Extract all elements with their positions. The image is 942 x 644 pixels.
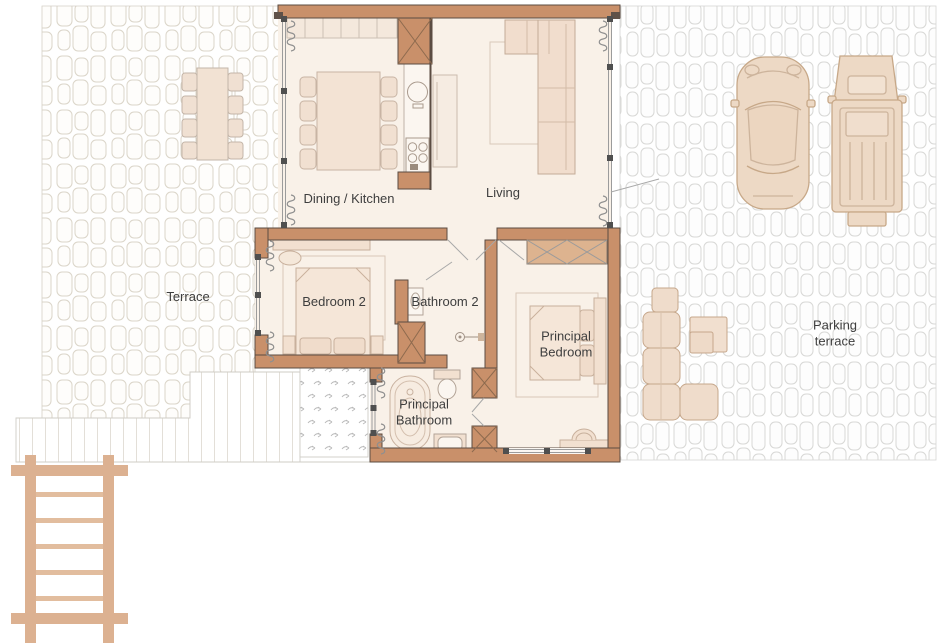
kitchen-tall-cabinet	[433, 75, 457, 167]
label-dining-kitchen: Dining / Kitchen	[303, 191, 394, 207]
terrace-stone-paving	[42, 6, 283, 418]
kitchen-divider-wall	[430, 18, 432, 190]
label-principal-bedroom: Principal Bedroom	[526, 328, 606, 359]
label-parking-terrace: Parking terrace	[804, 317, 866, 348]
label-principal-bathroom: Principal Bathroom	[378, 396, 470, 427]
sports-car	[731, 57, 815, 209]
planted-patio	[300, 363, 368, 457]
outdoor-dining-set	[182, 68, 243, 160]
kitchen-upper-cabinets	[287, 18, 397, 38]
kitchen-counter	[404, 62, 431, 174]
label-terrace: Terrace	[166, 289, 209, 305]
label-bedroom-2: Bedroom 2	[302, 294, 366, 310]
label-living: Living	[486, 185, 520, 201]
floor-plan-drawing	[0, 0, 942, 644]
pickup-truck	[828, 56, 906, 226]
principal-wardrobe	[527, 240, 607, 264]
floor-plan-canvas: Dining / Kitchen Living Terrace Bedroom …	[0, 0, 942, 644]
label-bathroom-2: Bathroom 2	[411, 294, 478, 310]
wooden-pergola	[11, 455, 128, 643]
